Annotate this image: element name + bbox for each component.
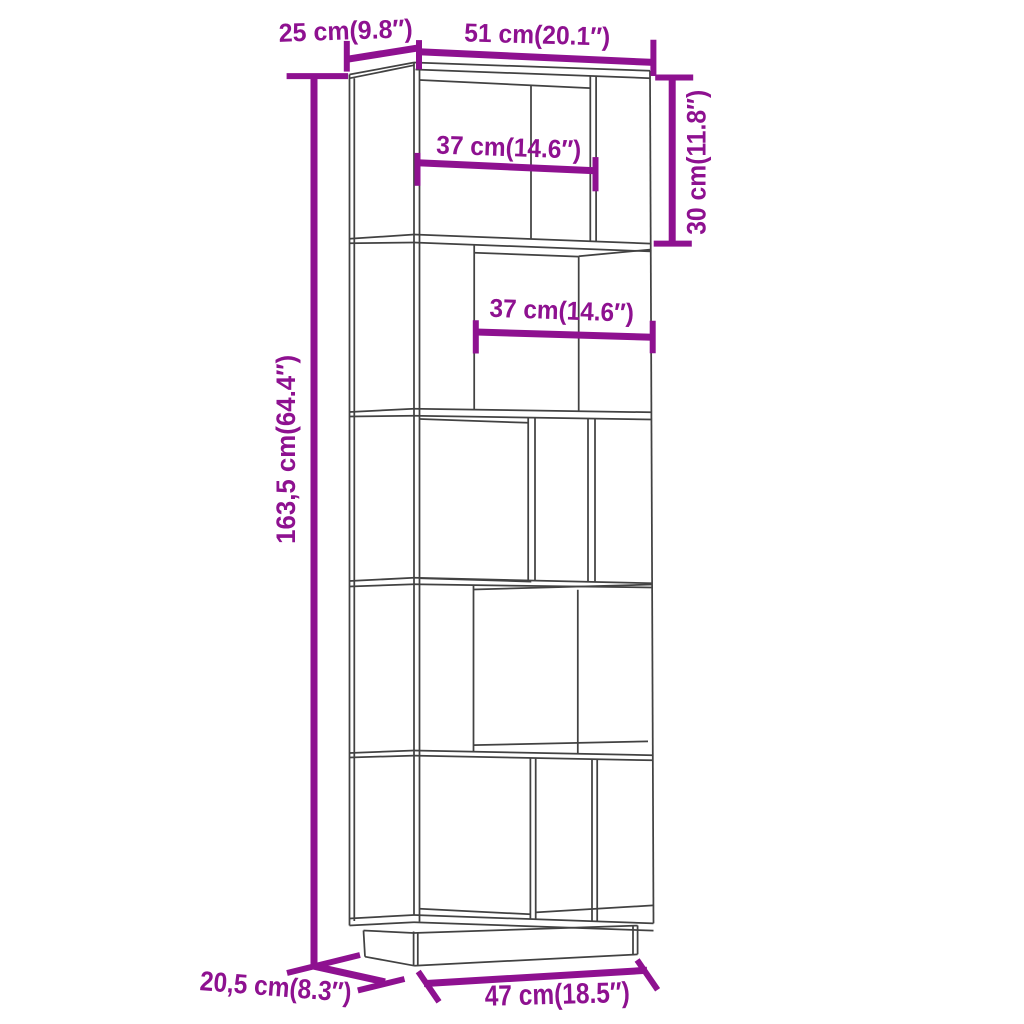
svg-text:163,5 cm(64.4″): 163,5 cm(64.4″) bbox=[271, 355, 301, 544]
svg-text:37 cm(14.6″): 37 cm(14.6″) bbox=[436, 130, 582, 165]
svg-text:51 cm(20.1″): 51 cm(20.1″) bbox=[464, 17, 611, 51]
svg-text:25 cm(9.8″): 25 cm(9.8″) bbox=[278, 13, 413, 48]
svg-text:37 cm(14.6″): 37 cm(14.6″) bbox=[489, 293, 634, 328]
svg-text:47 cm(18.5″): 47 cm(18.5″) bbox=[484, 977, 630, 1013]
svg-text:30 cm(11.8″): 30 cm(11.8″) bbox=[682, 90, 712, 235]
